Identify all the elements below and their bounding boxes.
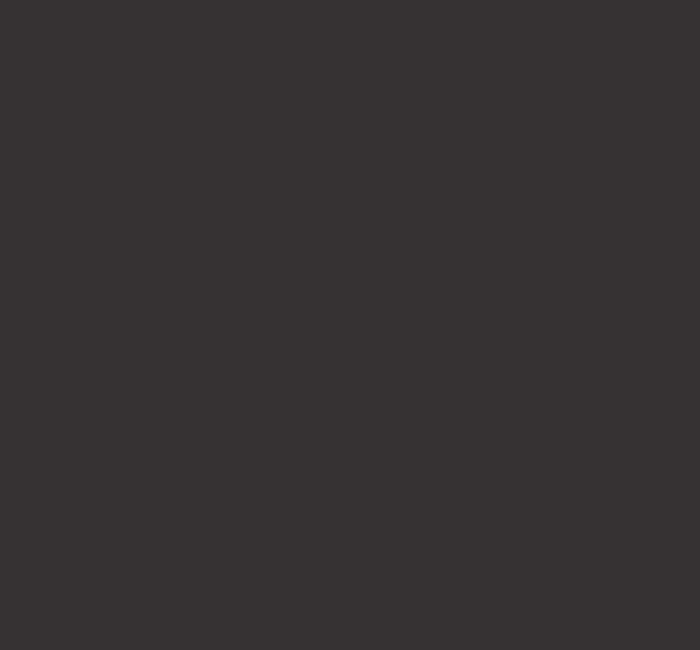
blank-screen	[0, 0, 700, 650]
